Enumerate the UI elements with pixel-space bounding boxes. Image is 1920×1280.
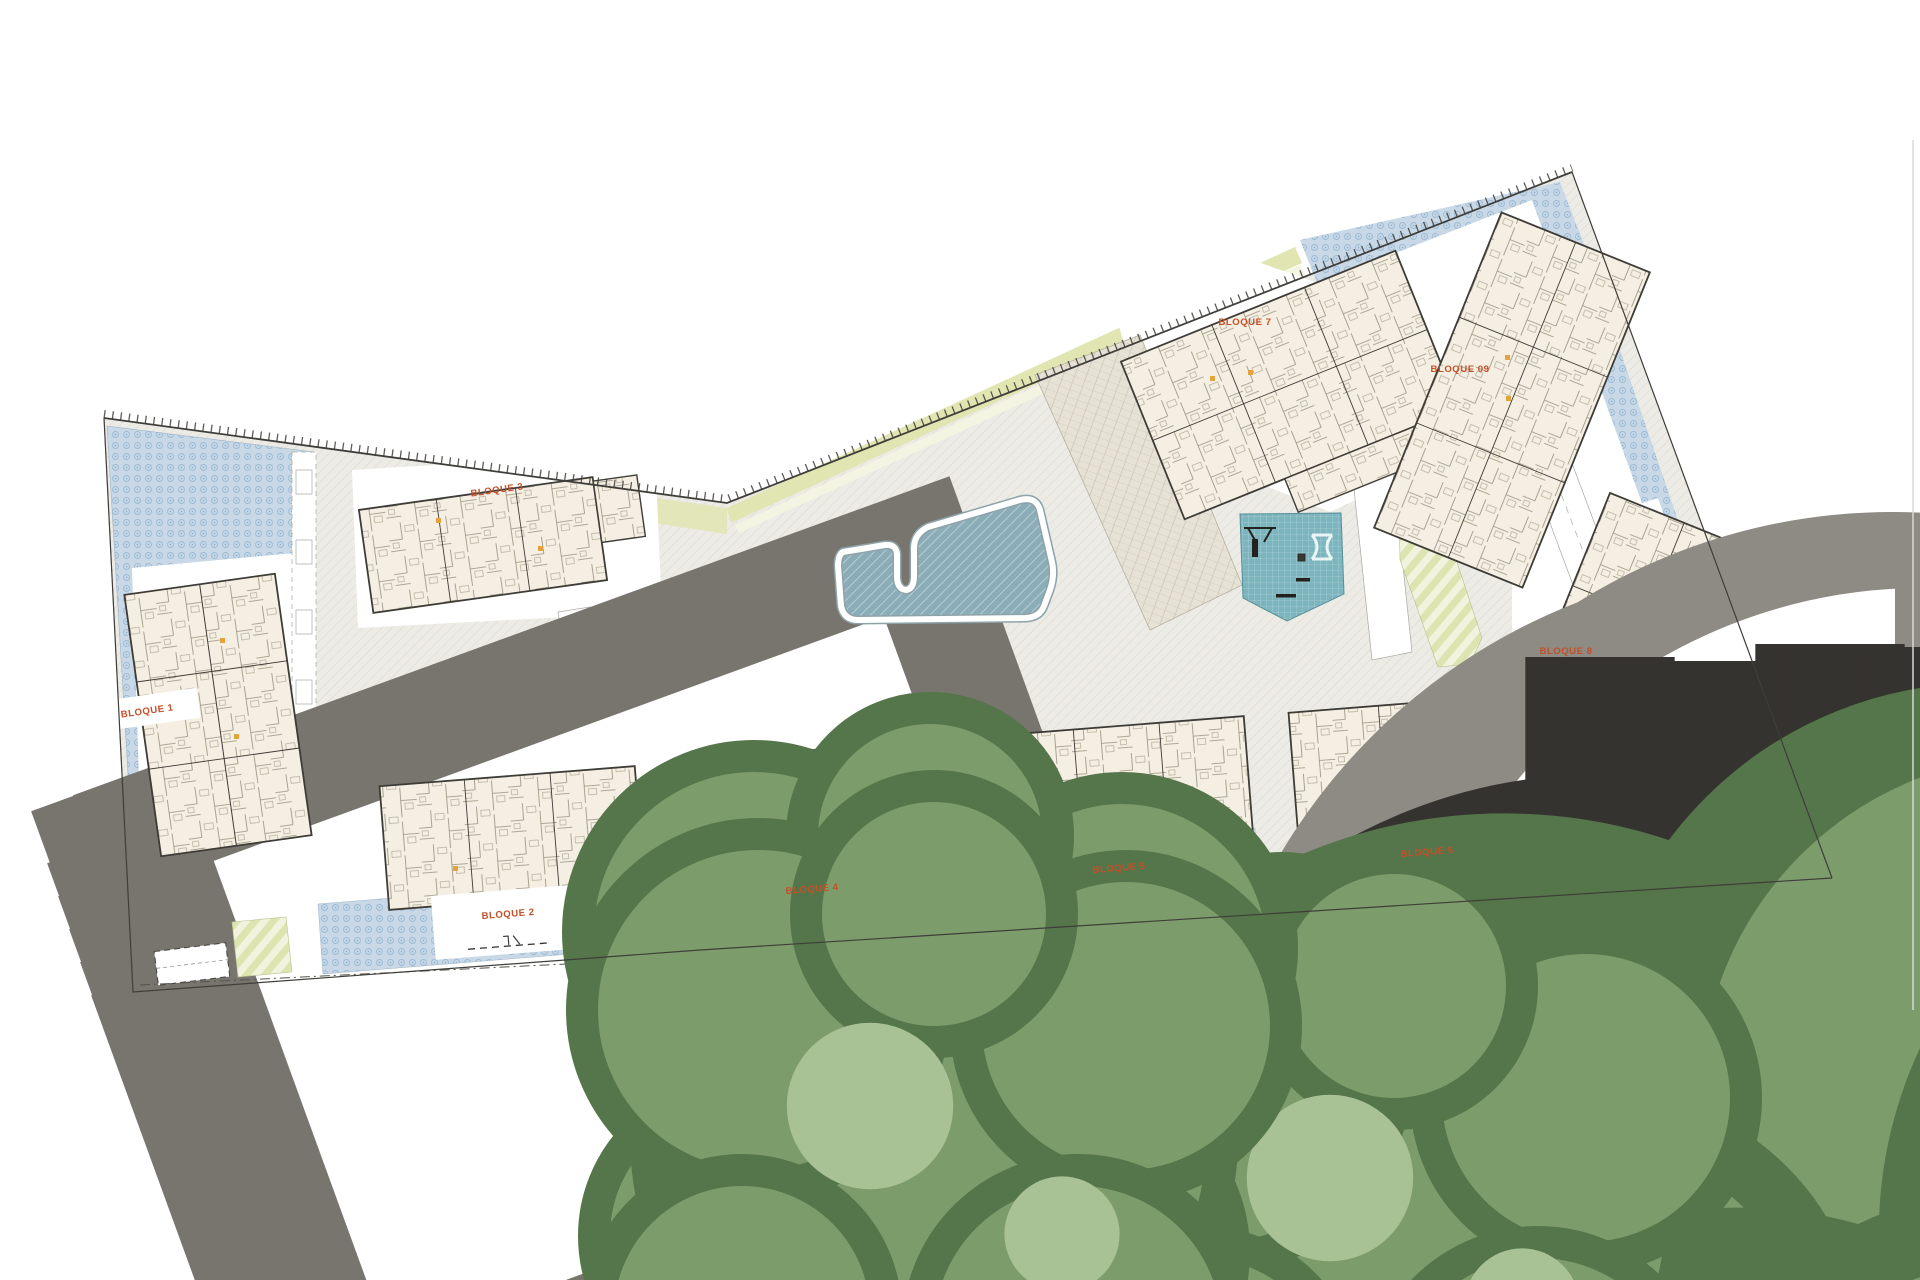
door-icon <box>1506 396 1511 401</box>
bush-icon <box>582 786 1286 1280</box>
door-icon <box>1505 355 1510 360</box>
door-icon <box>234 734 239 739</box>
door-icon <box>1248 370 1253 375</box>
site-plan-drawing: BLOQUE 1 BLOQUE 2 BLOQUE 3 BLOQUE 4 BLOQ… <box>0 0 1920 1280</box>
door-icon <box>538 546 543 551</box>
bloque-7-label: BLOQUE 7 <box>1218 317 1271 328</box>
bloque-9-label: BLOQUE 09 <box>1431 364 1490 375</box>
door-icon <box>436 518 441 523</box>
door-icon <box>1210 376 1215 381</box>
label-box-bloque2 <box>431 884 586 960</box>
site-plan-page: BLOQUE 1 BLOQUE 2 BLOQUE 3 BLOQUE 4 BLOQ… <box>0 0 1920 1280</box>
door-icon <box>453 866 458 871</box>
bloque-8-label: BLOQUE 8 <box>1539 646 1592 657</box>
lawn-parking-patch <box>232 917 292 977</box>
door-icon <box>220 638 225 643</box>
